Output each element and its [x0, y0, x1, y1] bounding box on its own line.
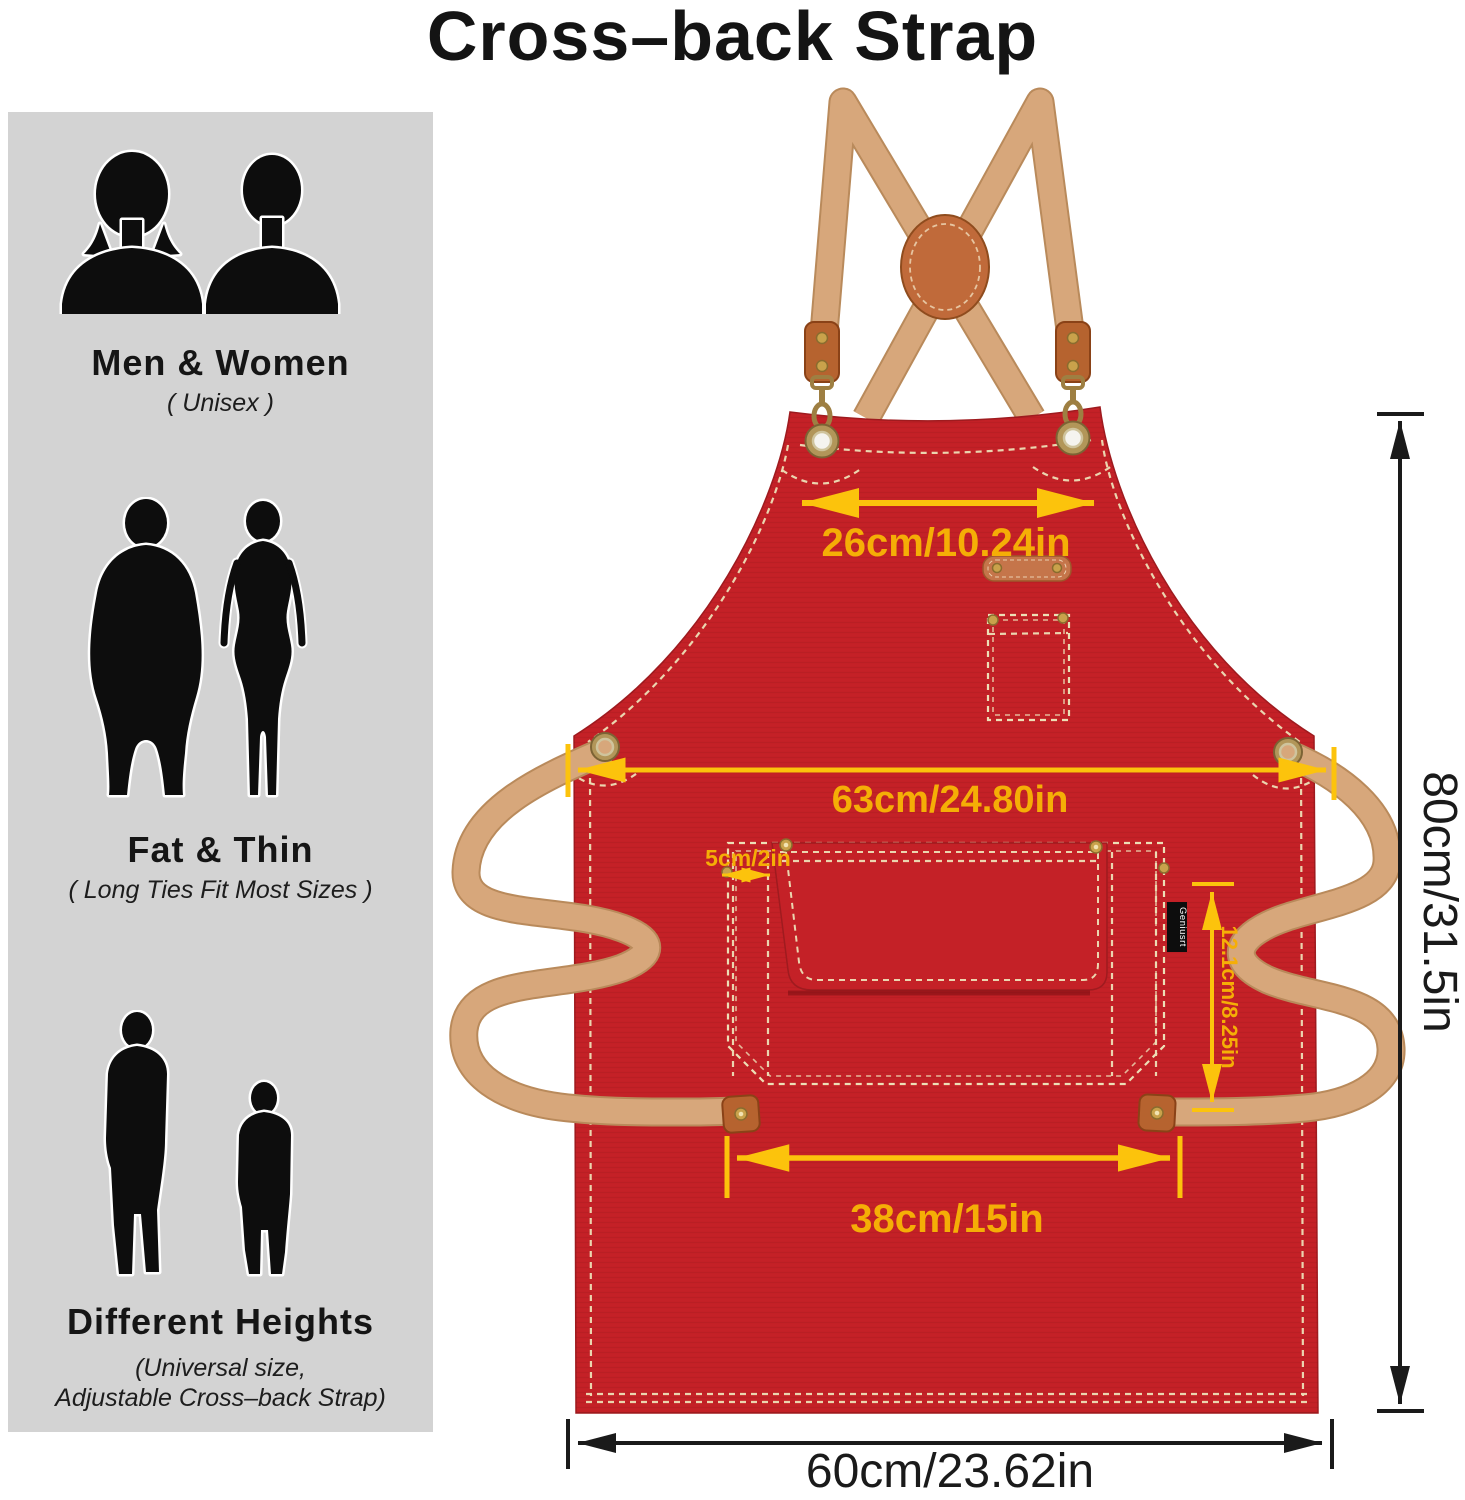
strap-tab-left [805, 322, 839, 388]
brand-tag: Geniusrt [1167, 902, 1188, 952]
dimension-bottom-width: 60cm/23.62in [568, 1419, 1332, 1498]
dimension-chest-width-label: 63cm/24.80in [832, 779, 1069, 821]
grommet-waist-left [591, 733, 619, 761]
dimension-apron-length: 80cm/31.5in [1377, 414, 1465, 1411]
pocket-flap [772, 843, 1107, 993]
cross-back-straps [805, 102, 1090, 418]
strap-tab-right [1056, 322, 1090, 388]
dimension-pocket-width-label: 38cm/15in [850, 1197, 1043, 1241]
product-infographic: Cross–back Strap Men & Women ( Unisex ) [0, 0, 1465, 1500]
dimension-slot-width-label: 5cm/2in [705, 845, 791, 871]
grommet-bib-right [1057, 422, 1090, 455]
grommet-bib-left [806, 425, 839, 458]
dimension-slot-width: 5cm/2in [705, 845, 791, 875]
grommet-waist-right [1274, 738, 1302, 766]
dimension-pocket-height-label: 12.1cm/8.25in [1217, 925, 1242, 1068]
apron-diagram: Geniusrt [0, 0, 1465, 1500]
dimension-apron-length-label: 80cm/31.5in [1413, 771, 1465, 1033]
leather-cross-patch [901, 215, 989, 319]
dimension-neck-width-label: 26cm/10.24in [821, 521, 1070, 565]
brand-tag-text: Geniusrt [1177, 907, 1188, 947]
dimension-bottom-width-label: 60cm/23.62in [806, 1445, 1094, 1498]
